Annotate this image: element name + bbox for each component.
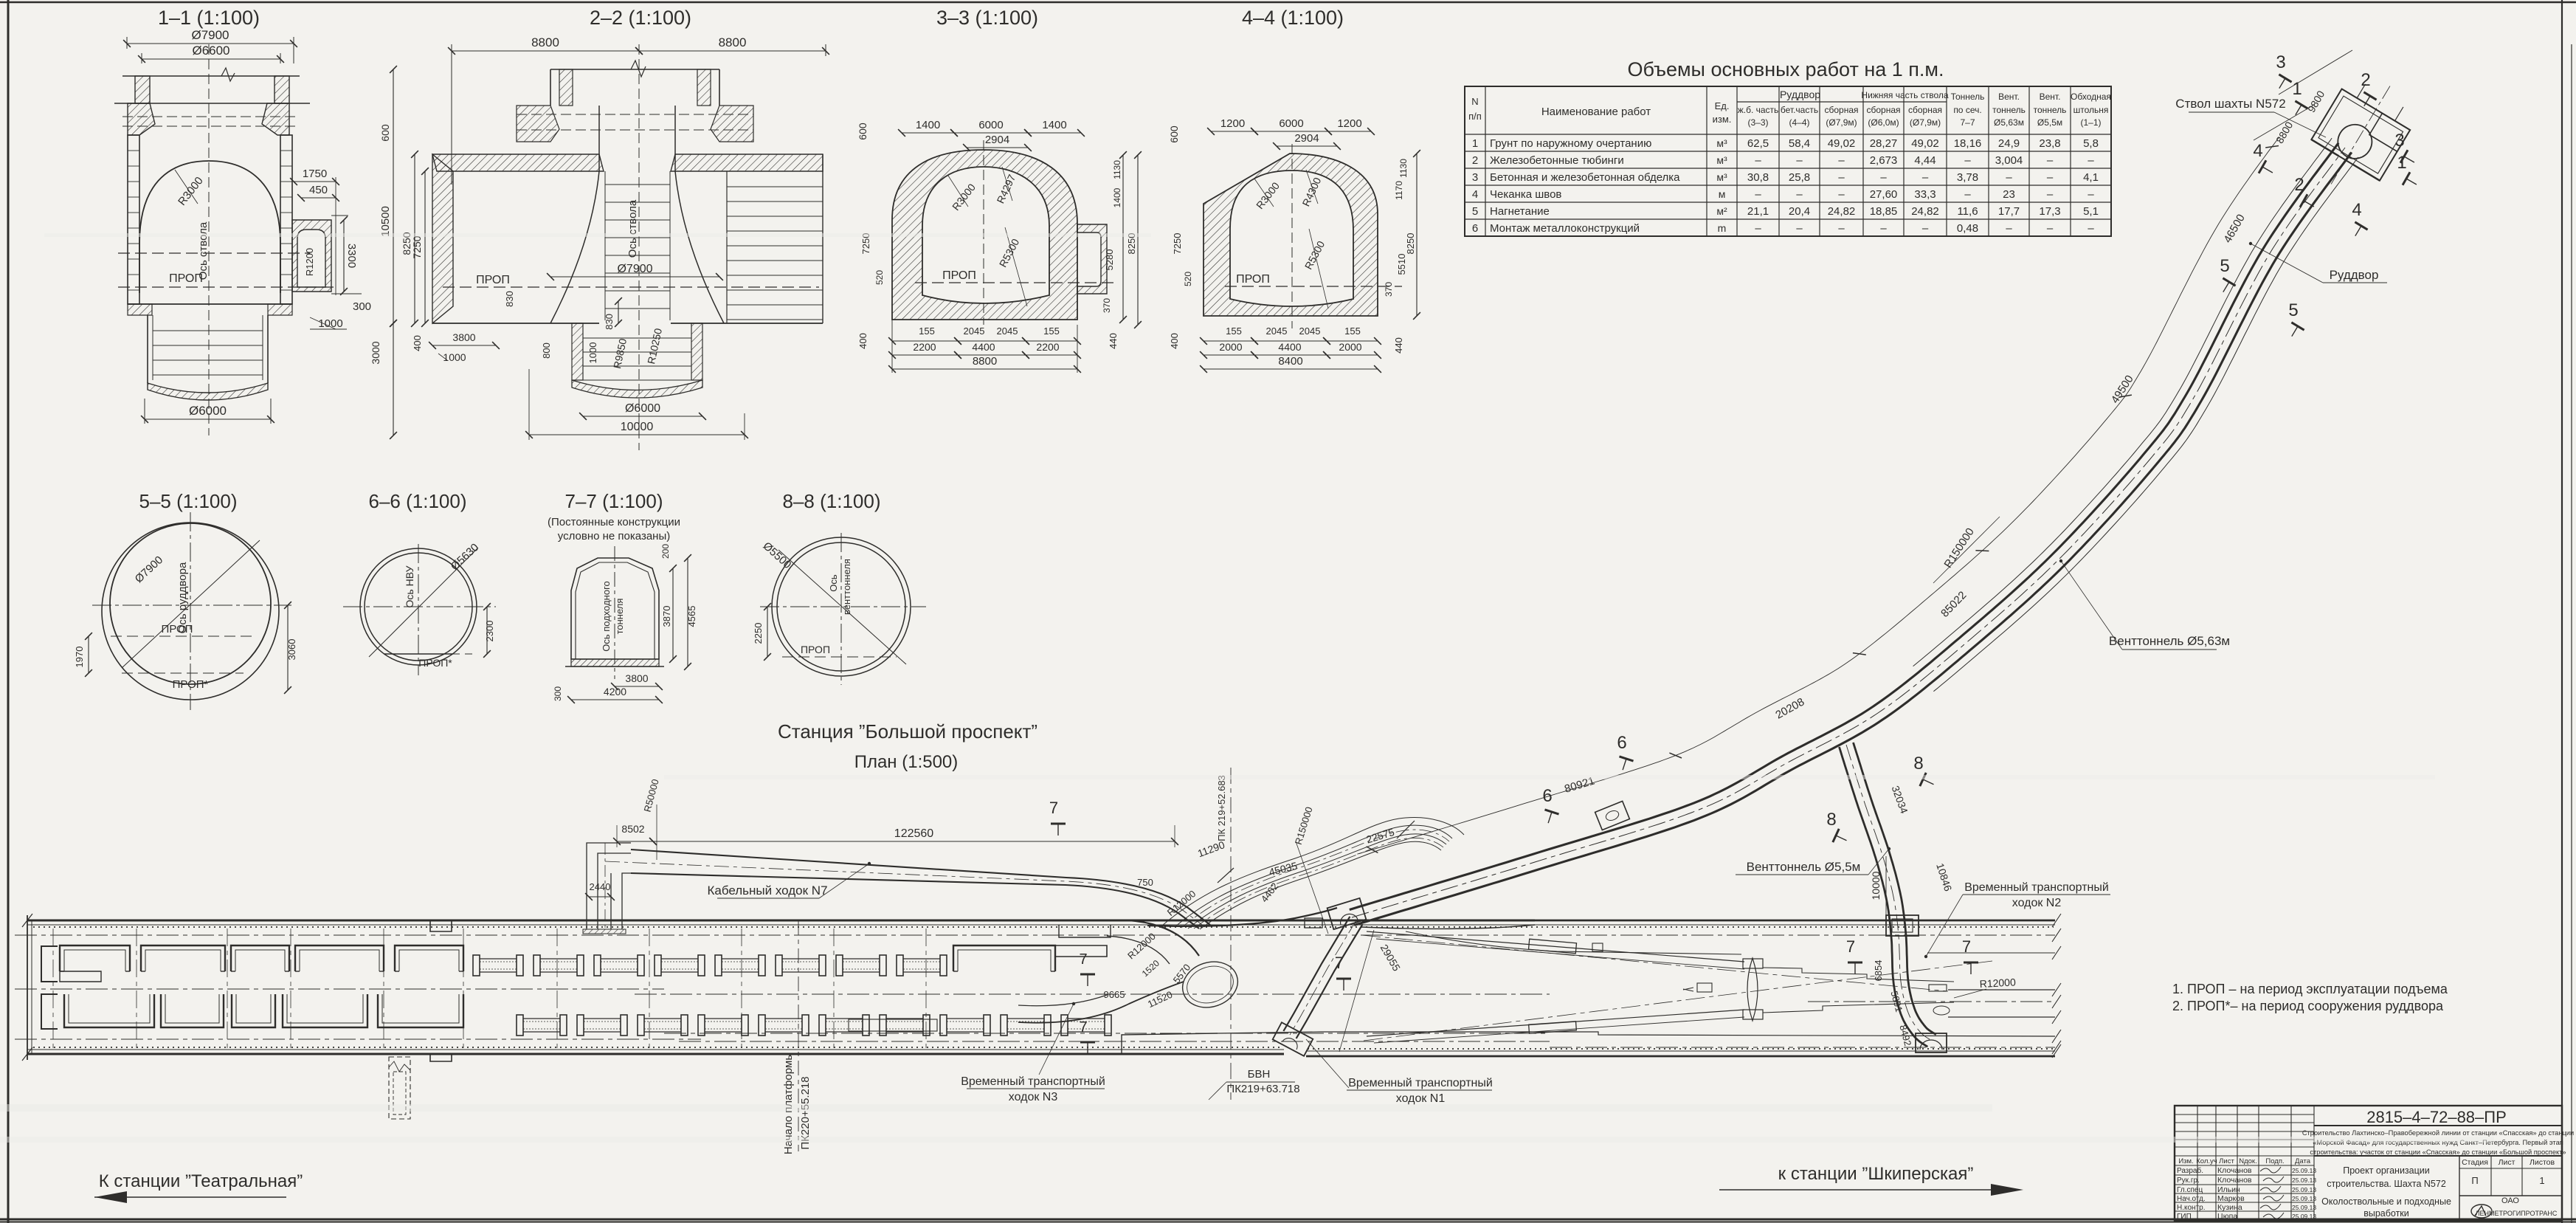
svg-text:N: N xyxy=(1471,96,1478,107)
svg-text:2. ПРОП*– на период сооруже: 2. ПРОП*– на период сооружения руддвора xyxy=(2172,999,2444,1013)
svg-text:1: 1 xyxy=(2539,1175,2544,1186)
svg-text:750: 750 xyxy=(1137,877,1153,888)
svg-text:Временный транспортный: Временный транспортный xyxy=(1348,1077,1493,1089)
svg-text:Рук.гр.: Рук.гр. xyxy=(2177,1177,2200,1185)
svg-text:Гл.спец: Гл.спец xyxy=(2177,1186,2203,1194)
svg-text:выработки: выработки xyxy=(2363,1208,2409,1219)
svg-text:18,16: 18,16 xyxy=(1954,137,1982,150)
svg-text:2300: 2300 xyxy=(484,621,495,642)
svg-text:Цюпа: Цюпа xyxy=(2217,1212,2237,1221)
svg-text:370: 370 xyxy=(1384,282,1394,297)
svg-text:Грунт по наружному очертанию: Грунт по наружному очертанию xyxy=(1490,137,1651,150)
svg-text:122560: 122560 xyxy=(894,827,933,840)
svg-text:1130: 1130 xyxy=(1112,160,1122,179)
svg-text:Околоствольные и подходные: Околоствольные и подходные xyxy=(2321,1196,2451,1207)
svg-text:1: 1 xyxy=(1472,137,1478,150)
svg-text:3060: 3060 xyxy=(286,639,297,661)
svg-text:5: 5 xyxy=(2288,300,2298,320)
svg-text:24,82: 24,82 xyxy=(1911,205,1939,218)
svg-text:2: 2 xyxy=(2294,175,2304,195)
svg-text:17,7: 17,7 xyxy=(1998,205,2020,218)
svg-text:Бетонная и железобетонная обде: Бетонная и железобетонная обделка xyxy=(1490,171,1680,184)
svg-text:(Ø6,0м): (Ø6,0м) xyxy=(1868,117,1899,128)
svg-text:1400: 1400 xyxy=(1112,187,1122,207)
svg-text:Объемы основных работ на 1 п.м: Объемы основных работ на 1 п.м. xyxy=(1628,58,1944,80)
svg-text:2200: 2200 xyxy=(913,341,936,353)
svg-text:ПК219+63.718: ПК219+63.718 xyxy=(1226,1083,1299,1095)
svg-text:ходок N1: ходок N1 xyxy=(1396,1092,1446,1105)
svg-text:400: 400 xyxy=(857,333,869,349)
svg-text:1130: 1130 xyxy=(1398,159,1409,178)
svg-text:21,1: 21,1 xyxy=(1747,205,1769,218)
svg-text:23,8: 23,8 xyxy=(2039,137,2060,150)
svg-text:(4–4): (4–4) xyxy=(1789,117,1809,128)
svg-text:по сеч.: по сеч. xyxy=(1953,105,1981,115)
svg-text:Кабельный ходок N7: Кабельный ходок N7 xyxy=(707,883,827,898)
svg-text:ходок N2: ходок N2 xyxy=(2012,897,2062,909)
svg-text:4565: 4565 xyxy=(686,606,697,627)
svg-text:155: 155 xyxy=(919,325,935,337)
svg-text:–: – xyxy=(1838,188,1845,201)
svg-text:Ø6600: Ø6600 xyxy=(192,44,229,58)
svg-text:Вент.: Вент. xyxy=(1998,92,2020,102)
svg-text:–: – xyxy=(1796,154,1803,167)
svg-text:4400: 4400 xyxy=(972,341,995,353)
svg-text:2,673: 2,673 xyxy=(1870,154,1898,167)
svg-text:Ось: Ось xyxy=(828,574,839,592)
svg-text:1400: 1400 xyxy=(1042,119,1066,131)
svg-text:ПРОП: ПРОП xyxy=(476,274,510,286)
svg-text:2440: 2440 xyxy=(590,881,611,892)
svg-text:тоннель: тоннель xyxy=(2034,105,2067,115)
svg-text:–: – xyxy=(1838,154,1845,167)
svg-text:6000: 6000 xyxy=(978,119,1003,131)
svg-text:25.09.13: 25.09.13 xyxy=(2292,1177,2316,1184)
svg-text:Ø6000: Ø6000 xyxy=(189,404,227,418)
svg-text:440: 440 xyxy=(1393,337,1404,354)
svg-text:Временный транспортный: Временный транспортный xyxy=(961,1075,1105,1088)
svg-text:Nдок.: Nдок. xyxy=(2239,1157,2256,1165)
svg-text:7250: 7250 xyxy=(411,235,423,258)
svg-text:4400: 4400 xyxy=(1278,341,1301,353)
svg-text:25,8: 25,8 xyxy=(1789,171,1810,184)
svg-text:Н.контр.: Н.контр. xyxy=(2177,1204,2206,1212)
svg-text:Нижняя часть ствола: Нижняя часть ствола xyxy=(1861,90,1949,100)
svg-text:Листов: Листов xyxy=(2530,1158,2555,1167)
svg-text:ГИП: ГИП xyxy=(2177,1213,2192,1221)
svg-text:4: 4 xyxy=(2253,141,2262,161)
svg-text:Подп.: Подп. xyxy=(2265,1157,2284,1165)
svg-text:155: 155 xyxy=(1043,325,1060,337)
svg-text:К станции ”Театральная”: К станции ”Театральная” xyxy=(99,1171,303,1191)
svg-text:300: 300 xyxy=(353,300,371,313)
svg-text:10000: 10000 xyxy=(1870,871,1882,900)
svg-text:Проект организации: Проект организации xyxy=(2343,1165,2429,1176)
svg-text:ПРОП: ПРОП xyxy=(801,644,830,655)
svg-text:–: – xyxy=(1838,171,1845,184)
svg-text:300: 300 xyxy=(553,686,563,701)
svg-text:450: 450 xyxy=(309,184,328,196)
svg-text:п/п: п/п xyxy=(1468,111,1482,122)
svg-text:3800: 3800 xyxy=(452,331,475,343)
svg-text:5280: 5280 xyxy=(1104,249,1115,271)
svg-text:830: 830 xyxy=(604,314,615,330)
svg-text:Ствол шахты N572: Ствол шахты N572 xyxy=(2175,97,2285,111)
svg-text:2045: 2045 xyxy=(1266,325,1288,337)
svg-text:строительства. Шахта N572: строительства. Шахта N572 xyxy=(2327,1179,2446,1189)
svg-text:Чеканка швов: Чеканка швов xyxy=(1490,188,1561,201)
svg-text:10500: 10500 xyxy=(379,206,392,237)
svg-text:1970: 1970 xyxy=(74,647,85,668)
svg-text:4,1: 4,1 xyxy=(2083,171,2099,184)
svg-text:25.09.13: 25.09.13 xyxy=(2292,1167,2316,1174)
svg-text:27,60: 27,60 xyxy=(1870,188,1898,201)
svg-text:8–8 (1:100): 8–8 (1:100) xyxy=(783,490,881,512)
svg-text:4,44: 4,44 xyxy=(1914,154,1936,167)
svg-text:5: 5 xyxy=(1472,205,1478,218)
svg-text:Разраб.: Разраб. xyxy=(2177,1166,2203,1175)
svg-text:400: 400 xyxy=(412,335,423,351)
svg-text:Марков: Марков xyxy=(2217,1194,2245,1203)
svg-text:8502: 8502 xyxy=(621,823,644,835)
svg-text:2000: 2000 xyxy=(1219,341,1242,353)
svg-text:23: 23 xyxy=(2003,188,2015,201)
svg-text:4: 4 xyxy=(1472,188,1478,201)
svg-text:м³: м³ xyxy=(1716,137,1727,149)
svg-text:830: 830 xyxy=(504,291,515,307)
svg-text:–: – xyxy=(1755,188,1761,201)
svg-text:м²: м² xyxy=(1716,205,1727,217)
svg-text:3300: 3300 xyxy=(345,244,358,268)
svg-text:Клочанов: Клочанов xyxy=(2217,1166,2252,1175)
svg-text:3,78: 3,78 xyxy=(1957,171,1978,184)
svg-text:3800: 3800 xyxy=(625,672,648,684)
svg-text:3: 3 xyxy=(2276,52,2285,72)
svg-text:17,3: 17,3 xyxy=(2039,205,2060,218)
svg-text:1000: 1000 xyxy=(587,342,598,364)
svg-text:Нач.отд.: Нач.отд. xyxy=(2177,1195,2206,1203)
svg-text:3000: 3000 xyxy=(370,341,381,364)
svg-text:–: – xyxy=(2047,222,2054,235)
svg-text:–: – xyxy=(1964,154,1971,167)
svg-text:тоннель: тоннель xyxy=(1992,105,2026,115)
svg-text:Нагнетание: Нагнетание xyxy=(1490,205,1550,218)
svg-text:Ось подходного: Ось подходного xyxy=(601,581,612,652)
svg-text:Ось ствола: Ось ствола xyxy=(197,221,210,280)
svg-text:3: 3 xyxy=(1472,171,1478,184)
svg-text:155: 155 xyxy=(1344,325,1361,337)
svg-text:7–7: 7–7 xyxy=(1960,117,1975,128)
svg-text:8250: 8250 xyxy=(1405,233,1416,255)
svg-text:Ильин: Ильин xyxy=(2217,1185,2240,1194)
svg-text:изм.: изм. xyxy=(1713,114,1732,125)
svg-text:–: – xyxy=(2047,188,2054,201)
svg-text:1000: 1000 xyxy=(318,317,342,330)
svg-text:сборная: сборная xyxy=(1824,105,1858,115)
svg-text:2045: 2045 xyxy=(997,325,1018,337)
svg-text:24,9: 24,9 xyxy=(1998,137,2020,150)
svg-text:800: 800 xyxy=(541,342,552,359)
svg-text:Ø5,63м: Ø5,63м xyxy=(1994,117,2024,128)
svg-text:Наименование работ: Наименование работ xyxy=(1541,106,1651,118)
svg-text:6854: 6854 xyxy=(1873,960,1884,982)
svg-text:8800: 8800 xyxy=(531,35,559,49)
svg-text:3–3 (1:100): 3–3 (1:100) xyxy=(936,7,1038,29)
svg-text:520: 520 xyxy=(1183,272,1193,286)
svg-text:Венттоннель Ø5,5м: Венттоннель Ø5,5м xyxy=(1747,860,1861,874)
svg-text:7: 7 xyxy=(1846,937,1855,956)
svg-text:Тоннель: Тоннель xyxy=(1951,92,1985,102)
svg-text:4: 4 xyxy=(2352,200,2361,220)
svg-text:Дата: Дата xyxy=(2295,1157,2311,1165)
svg-text:0,48: 0,48 xyxy=(1957,222,1978,235)
svg-text:Ø7900: Ø7900 xyxy=(191,28,229,42)
svg-text:Ед.: Ед. xyxy=(1715,100,1730,111)
svg-text:1–1 (1:100): 1–1 (1:100) xyxy=(158,7,260,29)
svg-text:10000: 10000 xyxy=(621,421,654,433)
svg-text:штольня: штольня xyxy=(2073,105,2109,115)
svg-text:6–6 (1:100): 6–6 (1:100) xyxy=(369,490,467,512)
svg-text:П: П xyxy=(2471,1175,2478,1186)
svg-text:4–4 (1:100): 4–4 (1:100) xyxy=(1242,7,1344,29)
svg-text:–: – xyxy=(1922,222,1929,235)
svg-text:7: 7 xyxy=(1079,1019,1087,1036)
svg-text:Вент.: Вент. xyxy=(2040,92,2061,102)
svg-text:2904: 2904 xyxy=(1294,132,1319,145)
svg-text:Кол.уч: Кол.уч xyxy=(2196,1157,2217,1165)
svg-text:8: 8 xyxy=(1826,810,1836,830)
svg-text:Ось ствола: Ось ствола xyxy=(626,199,639,258)
svg-text:–: – xyxy=(2088,188,2094,201)
svg-text:400: 400 xyxy=(1169,333,1180,349)
svg-text:Клочанов: Клочанов xyxy=(2217,1176,2252,1185)
svg-text:25.09.13: 25.09.13 xyxy=(2292,1195,2316,1202)
svg-text:м: м xyxy=(1719,188,1726,200)
svg-text:2250: 2250 xyxy=(753,623,764,644)
svg-text:Ø5,5м: Ø5,5м xyxy=(2037,117,2062,128)
svg-text:Изм.: Изм. xyxy=(2178,1157,2193,1165)
svg-text:2904: 2904 xyxy=(985,134,1009,146)
svg-text:Станция ”Большой проспект”: Станция ”Большой проспект” xyxy=(778,720,1037,743)
svg-text:Ø6000: Ø6000 xyxy=(625,402,660,415)
svg-text:Венттоннель Ø5,63м: Венттоннель Ø5,63м xyxy=(2109,634,2230,648)
svg-text:ОАО: ОАО xyxy=(2501,1196,2519,1205)
svg-text:Кузина: Кузина xyxy=(2217,1203,2242,1212)
svg-text:5,8: 5,8 xyxy=(2083,137,2099,150)
svg-text:7–7 (1:100): 7–7 (1:100) xyxy=(565,490,663,512)
svg-text:2: 2 xyxy=(1472,154,1478,167)
svg-text:3,004: 3,004 xyxy=(1995,154,2023,167)
svg-text:–: – xyxy=(2006,171,2012,184)
svg-text:3870: 3870 xyxy=(661,606,672,627)
svg-text:30,8: 30,8 xyxy=(1747,171,1769,184)
svg-text:5–5 (1:100): 5–5 (1:100) xyxy=(139,490,238,512)
svg-text:25.09.13: 25.09.13 xyxy=(2292,1186,2316,1193)
svg-text:24,82: 24,82 xyxy=(1828,205,1856,218)
svg-text:600: 600 xyxy=(857,123,869,140)
svg-text:–: – xyxy=(1755,222,1761,235)
svg-text:ходок N3: ходок N3 xyxy=(1009,1091,1058,1103)
svg-text:Руддвор: Руддвор xyxy=(1780,89,1820,100)
svg-text:–: – xyxy=(1880,171,1887,184)
svg-text:–: – xyxy=(1922,171,1929,184)
svg-text:(3–3): (3–3) xyxy=(1747,117,1768,128)
svg-text:–: – xyxy=(2047,171,2054,184)
svg-text:5: 5 xyxy=(2220,256,2229,276)
svg-text:сборная: сборная xyxy=(1866,105,1900,115)
svg-text:Строительство Лахтинско–Правоб: Строительство Лахтинско–Правобережной ли… xyxy=(2302,1129,2574,1137)
svg-text:ж.б. часть: ж.б. часть xyxy=(1738,105,1779,115)
svg-text:1: 1 xyxy=(2292,79,2302,99)
svg-text:2045: 2045 xyxy=(964,325,985,337)
svg-text:600: 600 xyxy=(379,124,391,142)
svg-text:5510: 5510 xyxy=(1396,254,1407,275)
svg-text:49,02: 49,02 xyxy=(1828,137,1856,150)
svg-text:1170: 1170 xyxy=(1394,181,1404,200)
svg-text:Обходная: Обходная xyxy=(2071,92,2111,102)
svg-text:8800: 8800 xyxy=(719,35,747,49)
svg-text:m: m xyxy=(1718,222,1727,234)
svg-text:25.09.13: 25.09.13 xyxy=(2292,1213,2316,1220)
svg-text:6: 6 xyxy=(1617,733,1626,753)
svg-text:к станции ”Шкиперская”: к станции ”Шкиперская” xyxy=(1778,1164,1974,1184)
svg-text:R12000: R12000 xyxy=(1979,976,2016,990)
svg-text:7250: 7250 xyxy=(1172,233,1183,255)
svg-text:1000: 1000 xyxy=(443,351,466,363)
svg-text:–: – xyxy=(1755,154,1761,167)
svg-text:бет.часть: бет.часть xyxy=(1781,105,1818,115)
svg-text:2: 2 xyxy=(2361,70,2370,90)
svg-text:155: 155 xyxy=(1226,325,1242,337)
svg-text:(Постоянные конструкции: (Постоянные конструкции xyxy=(548,516,680,528)
svg-text:условно не показаны): условно не показаны) xyxy=(558,530,670,542)
svg-text:600: 600 xyxy=(1168,125,1180,143)
svg-text:ПК 219+52.683: ПК 219+52.683 xyxy=(1216,775,1227,841)
svg-text:7: 7 xyxy=(1049,799,1058,817)
svg-text:440: 440 xyxy=(1108,333,1119,349)
svg-text:1200: 1200 xyxy=(1220,117,1245,130)
svg-text:Лист: Лист xyxy=(2219,1157,2234,1165)
svg-text:сборная: сборная xyxy=(1908,105,1942,115)
svg-text:33,3: 33,3 xyxy=(1914,188,1936,201)
svg-text:R1200: R1200 xyxy=(304,248,315,276)
svg-text:Железобетонные тюбинги: Железобетонные тюбинги xyxy=(1490,154,1624,167)
svg-text:9665: 9665 xyxy=(1104,989,1125,1000)
svg-text:–: – xyxy=(1796,222,1803,235)
svg-text:Монтаж металлоконструкций: Монтаж металлоконструкций xyxy=(1490,222,1640,235)
svg-text:5,1: 5,1 xyxy=(2083,205,2099,218)
svg-text:1200: 1200 xyxy=(1337,117,1361,130)
svg-text:ПРОП*: ПРОП* xyxy=(173,678,209,691)
svg-text:6000: 6000 xyxy=(1279,117,1303,130)
svg-text:Временный транспортный: Временный транспортный xyxy=(1964,881,2109,894)
svg-text:–: – xyxy=(2047,154,2054,167)
svg-text:Стадия: Стадия xyxy=(2462,1158,2488,1167)
svg-text:520: 520 xyxy=(874,270,885,285)
svg-text:–: – xyxy=(1880,222,1887,235)
svg-text:ПРОП: ПРОП xyxy=(942,269,976,282)
svg-text:ПРОП*: ПРОП* xyxy=(418,657,452,669)
svg-text:Руддвор: Руддвор xyxy=(2330,268,2379,282)
svg-text:м³: м³ xyxy=(1716,171,1727,183)
svg-text:3: 3 xyxy=(2394,131,2404,151)
svg-text:Лист: Лист xyxy=(2499,1158,2515,1167)
svg-text:200: 200 xyxy=(660,544,671,559)
svg-text:2815–4–72–88–ПР: 2815–4–72–88–ПР xyxy=(2366,1108,2507,1126)
svg-text:(Ø7,9м): (Ø7,9м) xyxy=(1910,117,1941,128)
svg-text:4200: 4200 xyxy=(604,686,626,697)
svg-text:8400: 8400 xyxy=(1278,355,1302,368)
svg-text:28,27: 28,27 xyxy=(1870,137,1898,150)
svg-text:тоннеля: тоннеля xyxy=(614,599,625,635)
svg-text:ПРОП: ПРОП xyxy=(162,623,193,635)
svg-text:(Ø7,9м): (Ø7,9м) xyxy=(1826,117,1857,128)
svg-text:11,6: 11,6 xyxy=(1957,205,1978,218)
svg-text:8: 8 xyxy=(1913,754,1923,774)
svg-text:БВН: БВН xyxy=(1248,1068,1271,1081)
svg-text:25.09.13: 25.09.13 xyxy=(2292,1204,2316,1211)
svg-text:20,4: 20,4 xyxy=(1789,205,1810,218)
svg-text:2045: 2045 xyxy=(1299,325,1321,337)
svg-text:ПРОП: ПРОП xyxy=(1236,273,1270,286)
svg-text:49,02: 49,02 xyxy=(1911,137,1939,150)
svg-text:18,85: 18,85 xyxy=(1870,205,1898,218)
svg-text:6: 6 xyxy=(1542,786,1552,806)
svg-text:м³: м³ xyxy=(1716,154,1727,166)
svg-text:7: 7 xyxy=(1079,951,1087,968)
svg-text:1400: 1400 xyxy=(916,119,940,131)
svg-text:2000: 2000 xyxy=(1339,341,1361,353)
svg-text:2–2 (1:100): 2–2 (1:100) xyxy=(590,7,691,29)
svg-text:62,5: 62,5 xyxy=(1747,137,1769,150)
svg-text:1750: 1750 xyxy=(303,168,327,180)
svg-text:(1–1): (1–1) xyxy=(2080,117,2101,128)
svg-text:1. ПРОП – на период эксплу: 1. ПРОП – на период эксплуатации подъема xyxy=(2172,982,2448,996)
svg-text:Ø7900: Ø7900 xyxy=(617,263,652,275)
svg-text:8800: 8800 xyxy=(973,355,997,368)
svg-text:6: 6 xyxy=(1472,222,1478,235)
svg-text:–: – xyxy=(1796,188,1803,201)
svg-text:–: – xyxy=(2006,222,2012,235)
svg-text:2200: 2200 xyxy=(1036,341,1059,353)
svg-text:венттоннеля: венттоннеля xyxy=(841,559,852,615)
svg-text:–: – xyxy=(1838,222,1845,235)
svg-text:58,4: 58,4 xyxy=(1789,137,1810,150)
svg-text:–: – xyxy=(1964,188,1971,201)
svg-text:строительства: участок от стан: строительства: участок от станции «Спасс… xyxy=(2310,1148,2566,1156)
svg-text:1: 1 xyxy=(2397,153,2406,173)
svg-text:–: – xyxy=(2088,154,2094,167)
svg-text:Ось НВУ: Ось НВУ xyxy=(404,565,415,607)
svg-text:План (1:500): План (1:500) xyxy=(854,752,959,772)
svg-text:–: – xyxy=(2088,222,2094,235)
svg-text:370: 370 xyxy=(1102,298,1112,313)
